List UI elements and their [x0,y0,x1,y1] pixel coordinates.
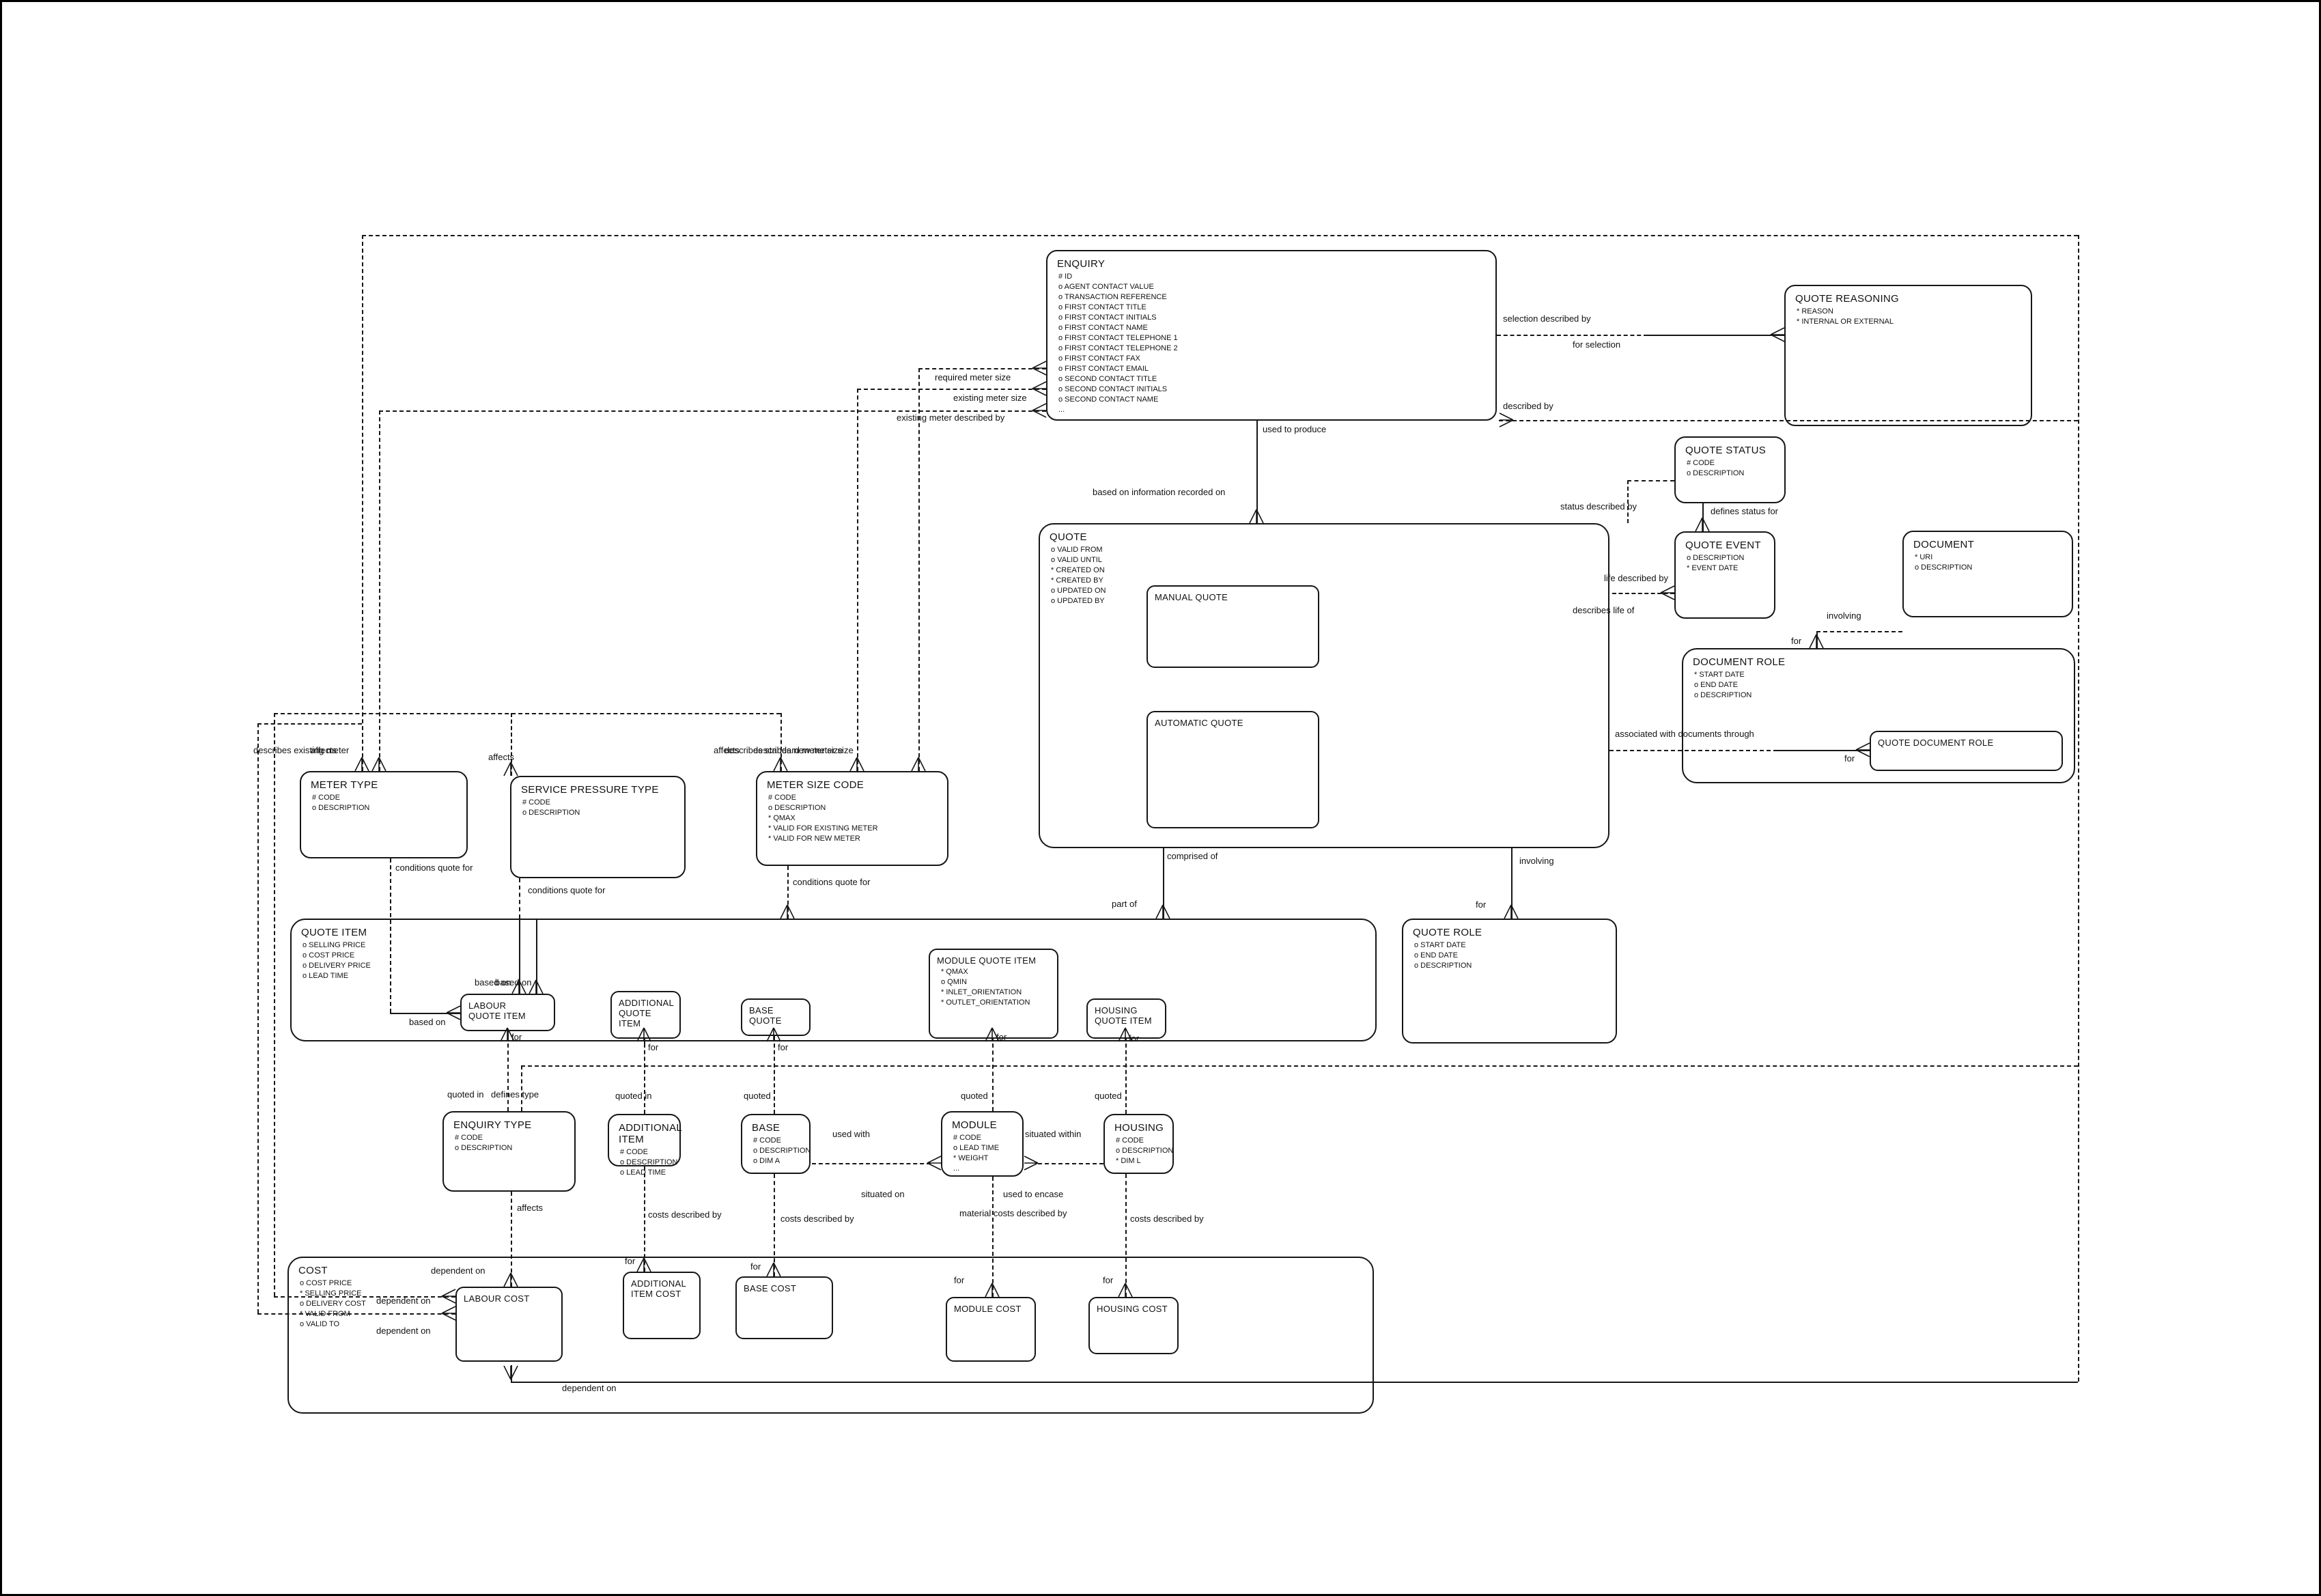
relationship-line [257,723,362,725]
relationship-line [511,1382,2078,1383]
entity-attribute: o DESCRIPTION [1105,1146,1172,1156]
entity-attribute: # CODE [609,1147,679,1158]
entity-attribute: o DESCRIPTION [1683,690,2074,701]
crows-foot-icon [1117,1027,1134,1042]
relationship-line [1648,335,1784,336]
label-part-of: part of [1112,899,1137,909]
label-involving-document: involving [1827,611,1861,621]
crows-foot-icon [503,1365,519,1380]
relationship-line [1256,421,1258,523]
label-costs-described-h: costs described by [1130,1214,1204,1224]
crows-foot-icon [1808,634,1825,649]
entity-title: MODULE QUOTE ITEM [930,950,1057,967]
label-affects-enquiry-type: affects [517,1203,543,1213]
relationship-line [992,1177,994,1297]
label-dependent-on-1: dependent on [376,1296,431,1306]
relationship-line [1609,750,1777,751]
entity-attribute: o DELIVERY PRICE [292,961,1375,971]
entity-attribute: # CODE [444,1133,574,1143]
label-associated-with-documents: associated with documents through [1615,729,1754,739]
entity-service-pressure-type[interactable]: SERVICE PRESSURE TYPE# CODEo DESCRIPTION [510,776,686,878]
entity-attribute: * INTERNAL OR EXTERNAL [1786,317,2031,327]
relationship-line [992,1044,994,1111]
entity-automatic-quote[interactable]: AUTOMATIC QUOTE [1147,711,1319,828]
relationship-line [1499,420,2078,421]
entity-quote-reasoning[interactable]: QUOTE REASONING* REASON* INTERNAL OR EXT… [1784,285,2032,426]
entity-additional-item[interactable]: ADDITIONAL ITEM# CODEo DESCRIPTIONo LEAD… [608,1114,681,1166]
relationship-line [379,410,380,771]
label-dependent-on-top: dependent on [431,1265,486,1276]
entity-attribute: o START DATE [1403,940,1616,951]
label-existing-meter-described-by: existing meter described by [897,412,1004,423]
entity-attribute: * VALID FOR NEW METER [757,834,947,844]
relationship-line [257,1313,455,1315]
entity-attribute: o UPDATED BY [1040,596,1608,606]
entity-document[interactable]: DOCUMENT* URIo DESCRIPTION [1902,531,2073,617]
label-dependent-on-2: dependent on [376,1326,431,1336]
label-for-housing-cost: for [1103,1275,1113,1285]
entity-title: DOCUMENT ROLE [1683,649,2074,670]
entity-attribute: * INLET_ORIENTATION [930,988,1057,998]
label-for-aqi: for [648,1042,658,1052]
entity-title: QUOTE REASONING [1786,286,2031,307]
relationship-line [1497,335,1648,336]
entity-attribute: * URI [1904,552,2072,563]
relationship-line [257,723,259,1313]
entity-module-quote-item[interactable]: MODULE QUOTE ITEM* QMAXo QMIN* INLET_ORI… [929,949,1058,1039]
label-conditions-quote-1: conditions quote for [395,863,473,873]
label-status-described-by: status described by [1560,501,1637,512]
label-involving-quote-role: involving [1519,856,1554,866]
entity-title: HOUSING [1105,1115,1172,1136]
entity-quote-status[interactable]: QUOTE STATUS# CODEo DESCRIPTION [1674,436,1786,503]
label-for-selection: for selection [1573,339,1620,350]
entity-module[interactable]: MODULE# CODEo LEAD TIME* WEIGHT... [941,1111,1024,1177]
crows-foot-icon [910,757,927,772]
relationship-line [507,1044,509,1111]
entity-attribute: # CODE [511,798,684,808]
label-for-quote-role: for [1476,899,1486,910]
relationship-line [1125,1174,1127,1297]
relationship-line [644,1044,645,1114]
entity-attribute: # CODE [1105,1136,1172,1146]
entity-attribute: o SECOND CONTACT NAME [1047,395,1495,405]
crows-foot-icon [528,979,544,994]
entity-attribute: o FIRST CONTACT EMAIL [1047,364,1495,374]
entity-attribute: o DESCRIPTION [1676,468,1784,479]
relationship-line [774,1044,775,1114]
relationship-line [362,235,2078,236]
entity-title: QUOTE EVENT [1676,533,1774,553]
crows-foot-icon [1032,361,1048,376]
entity-attribute: # CODE [742,1136,809,1146]
entity-attribute: # CODE [301,793,466,803]
entity-attribute: ... [742,1166,809,1177]
label-conditions-quote-3: conditions quote for [793,877,870,887]
entity-attribute: ... [942,1164,1022,1174]
crows-foot-icon [984,1283,1000,1298]
entity-meter-type[interactable]: METER TYPE# CODEo DESCRIPTION [300,771,468,858]
label-used-with: used with [832,1129,870,1139]
label-affects-spt: affects [488,752,514,762]
entity-labour-cost[interactable]: LABOUR COST [455,1287,563,1362]
entity-attribute: # CODE [757,793,947,803]
label-dependent-on-bottom: dependent on [562,1383,617,1393]
entity-attribute: o FIRST CONTACT NAME [1047,323,1495,333]
entity-attribute: o SECOND CONTACT TITLE [1047,374,1495,384]
relationship-line [362,235,363,771]
crows-foot-icon [1660,585,1676,600]
label-conditions-quote-2: conditions quote for [528,885,605,895]
entity-base-cost[interactable]: BASE COST [735,1276,833,1339]
entity-attribute: o DIM A [742,1156,809,1166]
label-based-on-h: based on [409,1017,446,1027]
crows-foot-icon [1024,1156,1040,1171]
relationship-line [390,858,391,1013]
entity-attribute: * QMAX [757,813,947,824]
entity-enquiry[interactable]: ENQUIRY# IDo AGENT CONTACT VALUEo TRANSA… [1046,250,1497,421]
label-costs-described-b: costs described by [780,1214,854,1224]
entity-attribute: * REASON [1786,307,2031,317]
entity-attribute: ... [1105,1166,1172,1177]
label-existing-meter-size: existing meter size [953,393,1027,403]
entity-attribute: o END DATE [1403,951,1616,961]
entity-attribute: o AGENT CONTACT VALUE [1047,282,1495,292]
entity-attribute: * VALID FOR EXISTING METER [757,824,947,834]
entity-title: METER TYPE [301,772,466,793]
er-diagram-canvas: ENQUIRY# IDo AGENT CONTACT VALUEo TRANSA… [0,0,2321,1596]
entity-attribute: o DESCRIPTION [444,1143,574,1153]
relationship-line [519,878,520,919]
entity-attribute: o DESCRIPTION [511,808,684,818]
crows-foot-icon [636,1257,652,1272]
entity-attribute: * WEIGHT [942,1153,1022,1164]
label-quoted-in-ai: quoted in [615,1091,652,1101]
label-for-bq: for [778,1042,788,1052]
label-quoted-housing: quoted [1095,1091,1122,1101]
entity-title: MODULE COST [947,1298,1035,1315]
entity-attribute: o VALID FROM [1040,545,1608,555]
entity-attribute: # CODE [1676,458,1784,468]
relationship-line [1038,1163,1103,1164]
entity-title: QUOTE ITEM [292,920,1375,940]
label-required-meter-size: required meter size [935,372,1011,382]
entity-attribute: o VALID UNTIL [1040,555,1608,565]
entity-attribute: o DESCRIPTION [757,803,947,813]
entity-attribute: o LEAD TIME [292,971,1375,981]
relationship-line [644,1166,645,1272]
entity-manual-quote[interactable]: MANUAL QUOTE [1147,585,1319,668]
crows-foot-icon [849,757,865,772]
entity-title: AUTOMATIC QUOTE [1148,712,1318,729]
label-for-document: for [1791,636,1801,646]
entity-attribute: o FIRST CONTACT TELEPHONE 2 [1047,344,1495,354]
crows-foot-icon [1032,403,1048,418]
crows-foot-icon [984,1027,1000,1042]
relationship-line [2078,235,2079,1382]
entity-attribute: o DESCRIPTION [1676,553,1774,563]
label-quoted-base: quoted [744,1091,771,1101]
entity-title: MODULE [942,1112,1022,1133]
entity-attribute: o FIRST CONTACT INITIALS [1047,313,1495,323]
crows-foot-icon [499,1027,516,1042]
crows-foot-icon [1694,517,1711,532]
entity-attribute: * CREATED ON [1040,565,1608,576]
relationship-line [1816,631,1902,632]
crows-foot-icon [1855,742,1872,757]
label-for-additional-cost: for [625,1256,635,1266]
entity-attribute: o SECOND CONTACT INITIALS [1047,384,1495,395]
entity-title: HOUSING COST [1090,1298,1177,1315]
crows-foot-icon [1499,412,1515,428]
entity-title: SERVICE PRESSURE TYPE [511,777,684,798]
crows-foot-icon [354,757,370,772]
entity-title: QUOTE DOCUMENT ROLE [1871,732,2062,749]
entity-attribute: o QMIN [930,977,1057,988]
label-life-described-by: life described by [1604,573,1668,583]
entity-title: BASE QUOTE [742,1000,809,1027]
entity-title: QUOTE [1040,524,1608,545]
entity-meter-size-code[interactable]: METER SIZE CODE# CODEo DESCRIPTION* QMAX… [756,771,948,866]
entity-attribute: * START DATE [1683,670,2074,680]
crows-foot-icon [636,1027,652,1042]
entity-attribute: * CREATED BY [1040,576,1608,586]
entity-attribute: # ID [1047,272,1495,282]
label-affects-meter-type: affects [311,745,337,755]
crows-foot-icon [927,1156,943,1171]
label-defines-status-for: defines status for [1711,506,1778,516]
relationship-line [274,713,275,1296]
crows-foot-icon [765,1027,782,1042]
label-based-on-info: based on information recorded on [1093,487,1225,497]
crows-foot-icon [441,1289,458,1304]
label-selection-described: selection described by [1503,313,1591,324]
crows-foot-icon [779,904,796,919]
relationship-line [1627,480,1674,481]
crows-foot-icon [1248,509,1265,524]
entity-additional-item-cost[interactable]: ADDITIONAL ITEM COST [623,1272,701,1339]
entity-quote-event[interactable]: QUOTE EVENTo DESCRIPTION* EVENT DATE [1674,531,1775,619]
label-situated-within: situated within [1025,1129,1081,1139]
label-used-to-produce: used to produce [1263,424,1326,434]
entity-quote-document-role[interactable]: QUOTE DOCUMENT ROLE [1870,731,2063,771]
label-situated-on: situated on [861,1189,905,1199]
entity-attribute: * OUTLET_ORIENTATION [930,998,1057,1008]
relationship-line [274,713,780,714]
entity-attribute: o DESCRIPTION [1403,961,1616,971]
entity-enquiry-type[interactable]: ENQUIRY TYPE# CODEo DESCRIPTION [442,1111,576,1192]
entity-title: ENQUIRY [1047,251,1495,272]
label-used-to-encase: used to encase [1003,1189,1063,1199]
entity-title: METER SIZE CODE [757,772,947,793]
entity-attribute: o FIRST CONTACT FAX [1047,354,1495,364]
label-described-by: described by [1503,401,1553,411]
relationship-line [857,389,858,771]
relationship-line [857,389,1046,390]
entity-attribute: ... [1047,405,1495,415]
entity-attribute: o FIRST CONTACT TELEPHONE 1 [1047,333,1495,344]
label-material-costs: material costs described by [959,1208,1067,1218]
crows-foot-icon [772,757,789,772]
entity-title: MANUAL QUOTE [1148,587,1318,604]
label-quoted-module: quoted [961,1091,988,1101]
relationship-line [812,1163,931,1164]
entity-title: ENQUIRY TYPE [444,1112,574,1133]
label-comprised-of: comprised of [1167,851,1218,861]
entity-housing-cost[interactable]: HOUSING COST [1088,1297,1179,1354]
entity-attribute: o LEAD TIME [942,1143,1022,1153]
relationship-line [774,1174,775,1276]
entity-attribute: o FIRST CONTACT TITLE [1047,303,1495,313]
entity-attribute: o END DATE [1683,680,2074,690]
crows-foot-icon [371,757,387,772]
relationship-line [1125,1044,1127,1114]
label-for-base-cost: for [750,1261,761,1272]
crows-foot-icon [503,1272,519,1287]
entity-base[interactable]: BASE# CODEo DESCRIPTIONo DIM A... [741,1114,811,1174]
relationship-line [379,410,1046,412]
entity-attribute: o DESCRIPTION [1904,563,2072,573]
entity-title: HOUSING QUOTE ITEM [1088,1000,1165,1027]
entity-attribute: # CODE [942,1133,1022,1143]
entity-title: BASE COST [737,1278,832,1295]
entity-attribute: o TRANSACTION REFERENCE [1047,292,1495,303]
crows-foot-icon [1117,1283,1134,1298]
crows-foot-icon [1155,904,1171,919]
crows-foot-icon [1770,327,1786,342]
entity-quote[interactable]: QUOTEo VALID FROMo VALID UNTIL* CREATED … [1039,523,1609,848]
relationship-line [918,368,1046,369]
entity-module-cost[interactable]: MODULE COST [946,1297,1036,1362]
entity-attribute: o DESCRIPTION [742,1146,809,1156]
entity-attribute: * QMAX [930,967,1057,977]
label-quoted-in-et: quoted in [447,1089,484,1100]
entity-housing[interactable]: HOUSING# CODEo DESCRIPTION* DIM L... [1103,1114,1174,1174]
entity-title: QUOTE ROLE [1403,920,1616,940]
crows-foot-icon [511,979,527,994]
entity-title: LABOUR COST [457,1288,561,1305]
entity-attribute: * EVENT DATE [1676,563,1774,574]
crows-foot-icon [1032,381,1048,396]
label-for-module-cost: for [954,1275,964,1285]
label-describes-new-meter-size: describes new meter size [753,745,854,755]
relationship-line [918,368,920,771]
entity-title: DOCUMENT [1904,532,2072,552]
crows-foot-icon [765,1262,782,1277]
crows-foot-icon [1503,904,1519,919]
entity-attribute: o SELLING PRICE [292,940,1375,951]
entity-title: ADDITIONAL QUOTE ITEM [612,992,679,1030]
entity-attribute: * DIM L [1105,1156,1172,1166]
label-costs-described-a: costs described by [648,1209,722,1220]
entity-title: BASE [742,1115,809,1136]
entity-title: LABOUR QUOTE ITEM [462,995,554,1022]
entity-labour-quote-item[interactable]: LABOUR QUOTE ITEM [460,994,555,1031]
crows-foot-icon [446,1005,462,1020]
relationship-line [521,1065,522,1111]
label-defines-type: defines type [491,1089,539,1100]
entity-attribute: o UPDATED ON [1040,586,1608,596]
entity-attribute: o DESCRIPTION [301,803,466,813]
entity-title: ADDITIONAL ITEM [609,1115,679,1147]
label-for-qdr: for [1844,753,1855,764]
entity-quote-item[interactable]: QUOTE ITEMo SELLING PRICEo COST PRICEo D… [290,919,1377,1041]
relationship-line [521,1065,2078,1067]
entity-attribute: o COST PRICE [292,951,1375,961]
crows-foot-icon [503,761,519,776]
entity-quote-role[interactable]: QUOTE ROLEo START DATEo END DATEo DESCRI… [1402,919,1617,1044]
label-describes-life-of: describes life of [1573,605,1634,615]
entity-title: ADDITIONAL ITEM COST [624,1273,699,1300]
crows-foot-icon [441,1306,458,1321]
entity-title: QUOTE STATUS [1676,438,1784,458]
